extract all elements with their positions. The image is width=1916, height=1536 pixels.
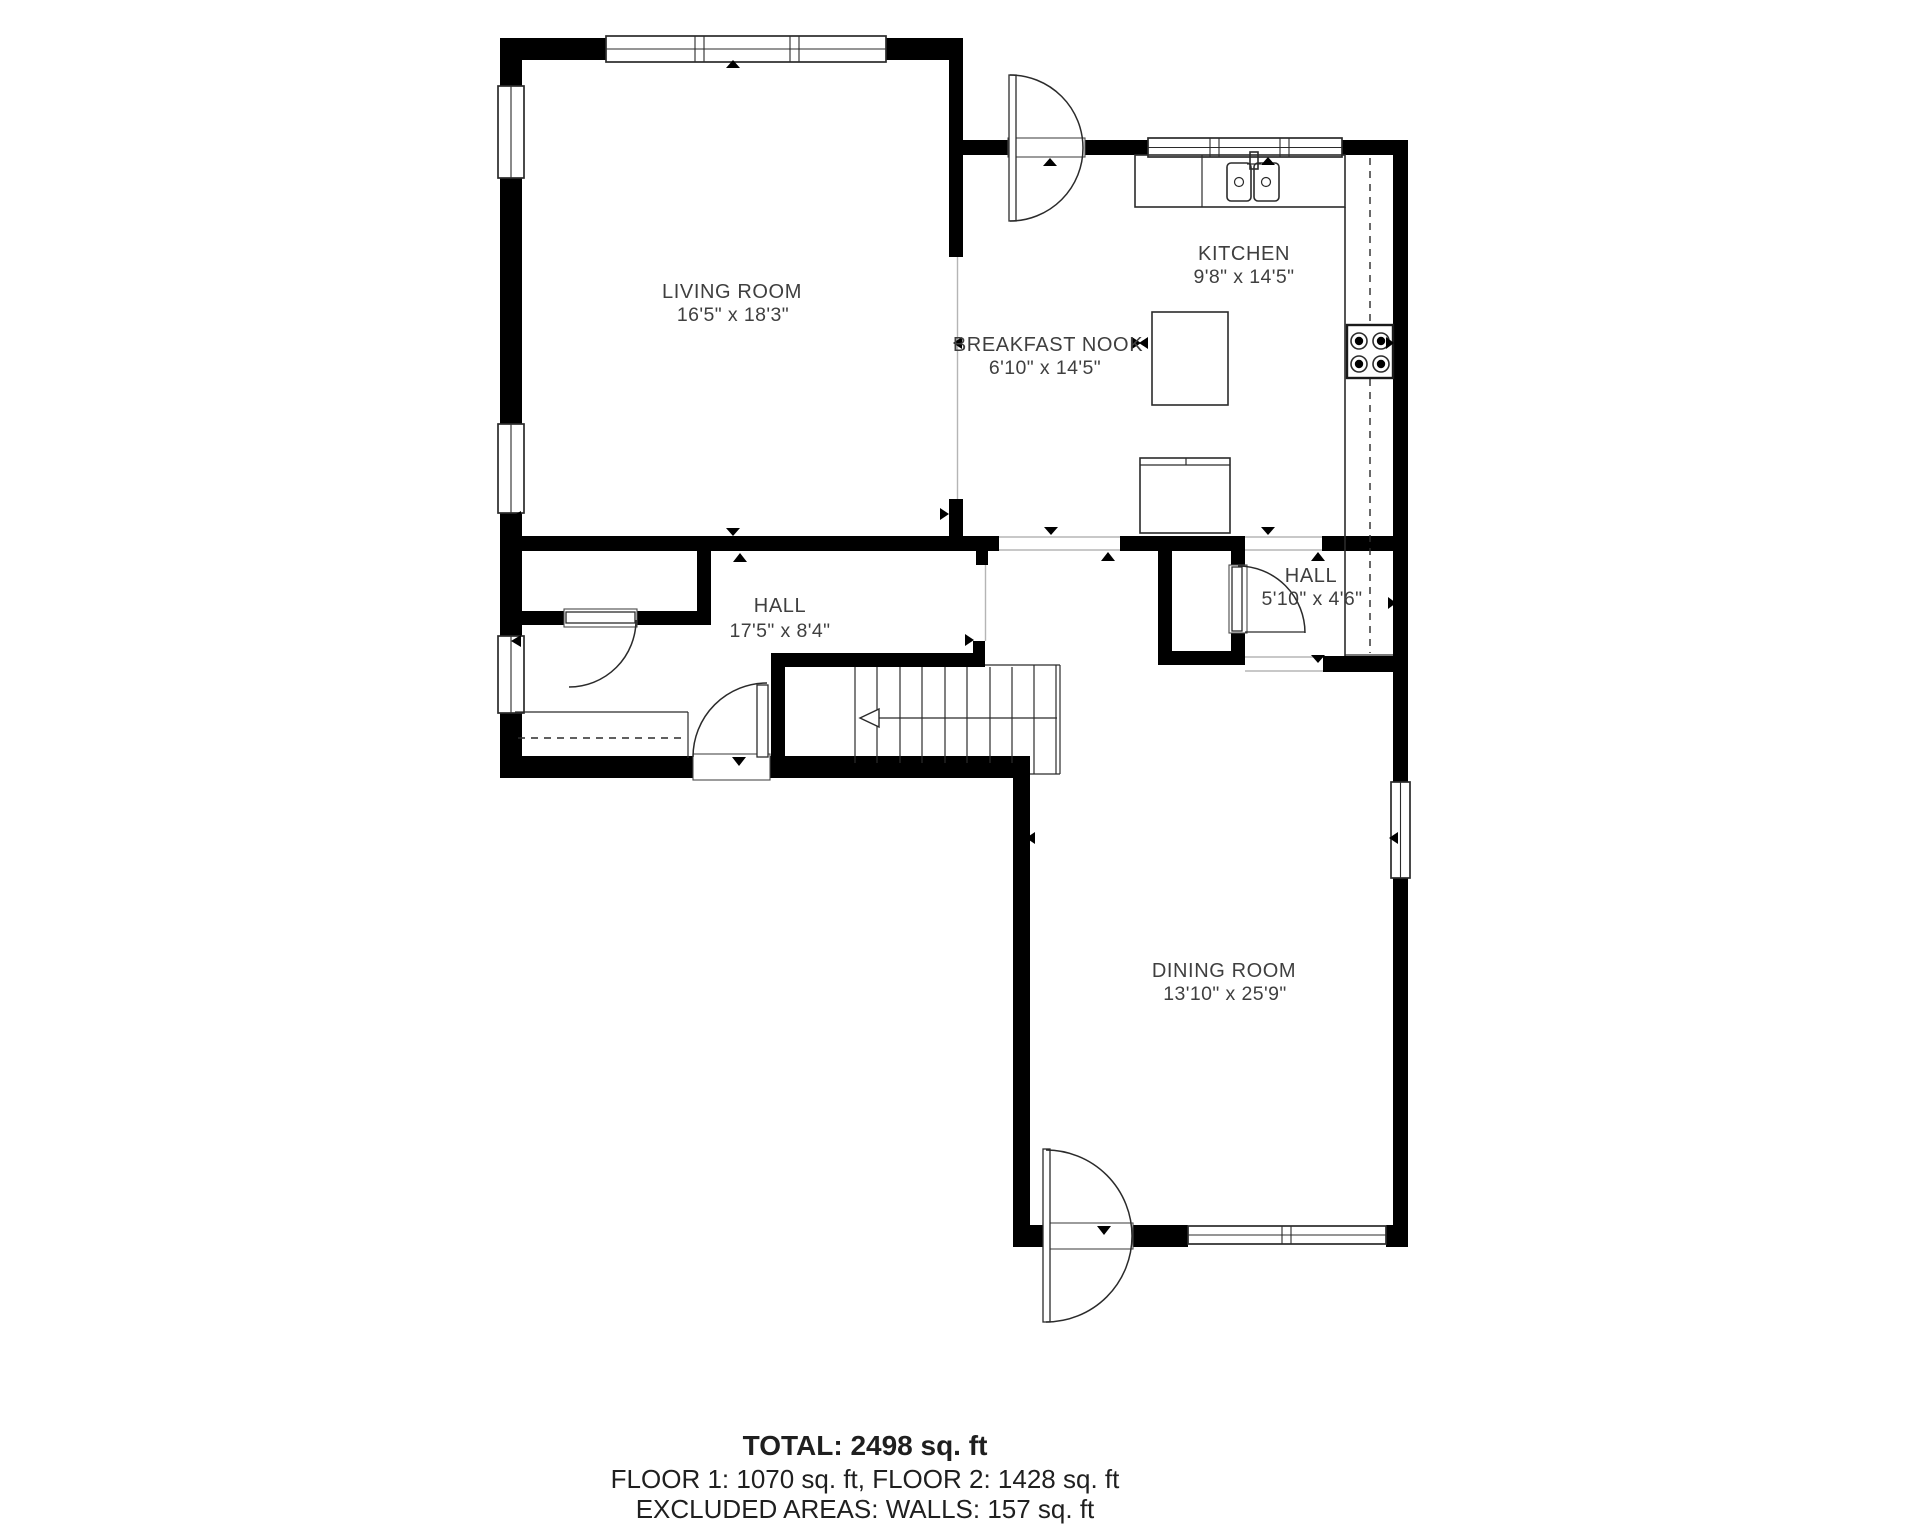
room-labels: LIVING ROOM 16'5" x 18'3" KITCHEN 9'8" x… [662,243,1362,1005]
living-room-label: LIVING ROOM [662,281,802,303]
stairs-direction-arrow [860,709,1057,727]
total-area-text: TOTAL: 2498 sq. ft [743,1430,988,1461]
breakfast-nook-label: BREAKFAST NOOK [953,334,1143,356]
kitchen-fixtures [1135,152,1393,656]
floor-areas-text: FLOOR 1: 1070 sq. ft, FLOOR 2: 1428 sq. … [611,1464,1120,1494]
double-swing-door-dining [1043,1149,1133,1322]
window [498,636,524,713]
window [1188,1226,1386,1244]
walls [500,38,1408,1247]
kitchen-label: KITCHEN [1198,243,1290,265]
stove [1347,325,1393,378]
window [498,424,524,513]
double-swing-door-kitchen-entry [1008,75,1085,221]
refrigerator [1140,458,1230,533]
kitchen-island [1152,312,1228,405]
dining-room-dims: 13'10" x 25'9" [1163,983,1286,1005]
window [498,86,524,178]
area-summary: TOTAL: 2498 sq. ft FLOOR 1: 1070 sq. ft,… [611,1430,1120,1524]
floor-plan-page: LIVING ROOM 16'5" x 18'3" KITCHEN 9'8" x… [0,0,1916,1536]
excluded-areas-text: EXCLUDED AREAS: WALLS: 157 sq. ft [636,1494,1095,1524]
coat-closet [515,712,688,758]
hall-small-label: HALL [1285,565,1337,587]
window [1391,782,1410,878]
dining-room-label: DINING ROOM [1152,960,1296,982]
door-hall-closet [564,609,637,687]
window [606,36,886,62]
breakfast-nook-dims: 6'10" x 14'5" [989,357,1101,379]
sink [1227,152,1279,201]
hall-label: HALL [754,595,806,617]
kitchen-dims: 9'8" x 14'5" [1194,266,1295,288]
floor-plan-canvas: LIVING ROOM 16'5" x 18'3" KITCHEN 9'8" x… [0,0,1916,1536]
living-room-dims: 16'5" x 18'3" [677,304,789,326]
hall-small-dims: 5'10" x 4'6" [1262,588,1363,610]
hall-dims: 17'5" x 8'4" [730,620,831,642]
front-door [693,683,770,780]
doors [564,75,1305,1322]
window [1148,138,1342,157]
